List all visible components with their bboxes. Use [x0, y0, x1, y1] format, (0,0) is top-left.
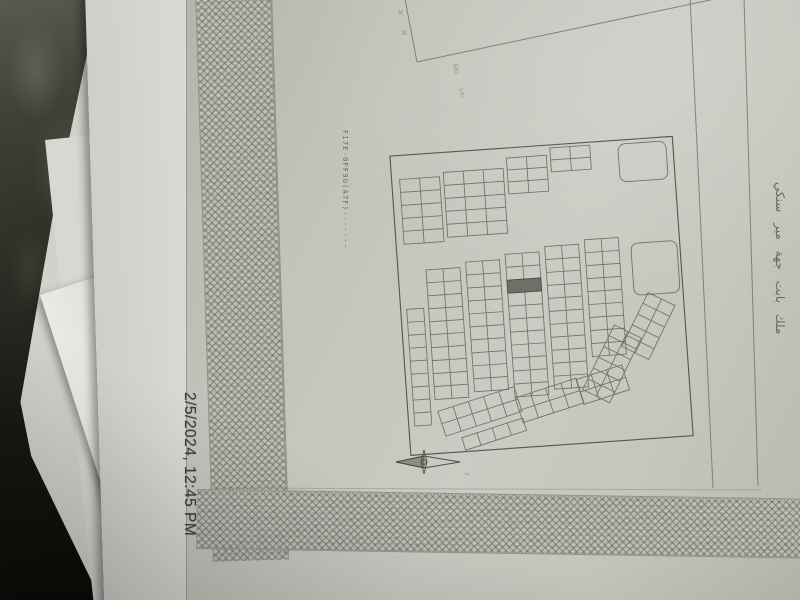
compass-north-arrow-icon	[396, 450, 460, 474]
plot-grid	[515, 378, 584, 423]
corner-note: 7	[462, 472, 469, 476]
photo-of-document: 600 140 7 2/5/2024, 12:45 PM F17E-0FF9G(…	[0, 0, 800, 600]
highlighted-plot	[507, 278, 542, 293]
plat-map	[390, 136, 693, 455]
plot-grids	[396, 140, 684, 454]
plot-grid	[426, 268, 469, 400]
plot-grid	[400, 177, 444, 245]
baseline	[210, 488, 762, 490]
plot-grid	[443, 168, 507, 237]
plot-grid	[466, 260, 509, 392]
plot-grid	[583, 325, 642, 403]
open-block	[631, 240, 681, 295]
plot-grid	[506, 155, 548, 194]
plot-grid	[462, 418, 527, 450]
urdu-handwritten-annotation: ملك بابت جهة مير سنكي	[773, 182, 787, 334]
camera-timestamp: 2/5/2024, 12:45 PM	[180, 392, 198, 536]
plot-grid	[576, 365, 630, 405]
open-block	[618, 141, 669, 182]
map-frame	[390, 136, 693, 455]
survey-tick-marks	[398, 10, 407, 35]
plot-grid	[584, 237, 626, 356]
plot-grid	[407, 308, 432, 426]
plot-grid	[545, 244, 589, 389]
dimension-note: 600	[451, 63, 459, 75]
reference-number: F17E-0FF9G(A7F)·······	[341, 130, 349, 249]
plot-grid	[550, 145, 592, 172]
dimension-note: 140	[457, 87, 465, 99]
plot-grid	[505, 252, 549, 397]
plot-grid	[622, 292, 675, 359]
plat-map-drawing: 600 140 7	[0, 0, 800, 600]
